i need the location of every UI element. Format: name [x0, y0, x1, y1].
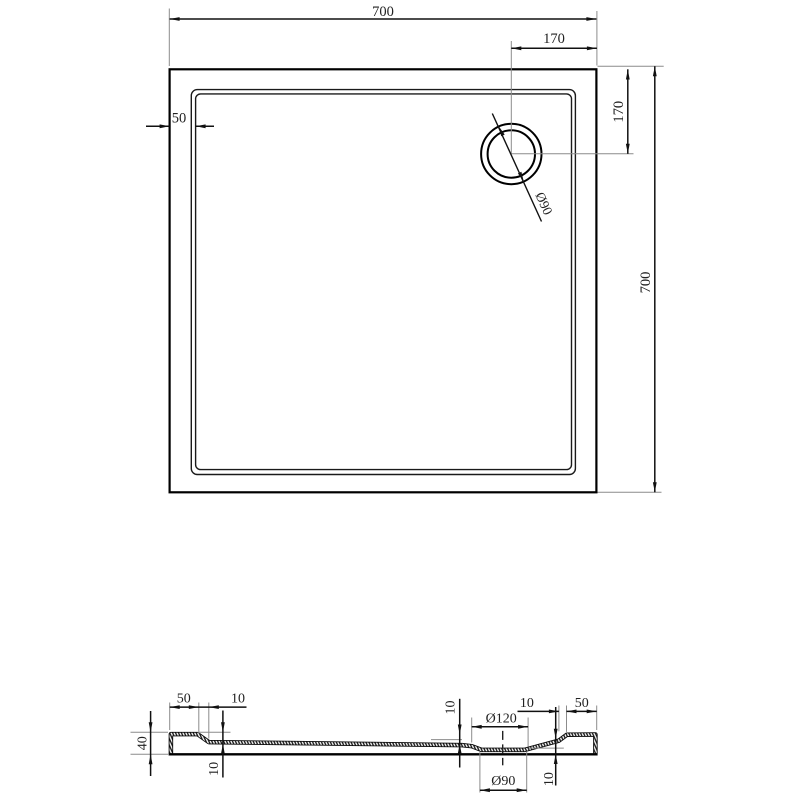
- svg-text:Ø90: Ø90: [532, 190, 555, 218]
- svg-text:700: 700: [372, 4, 394, 20]
- svg-text:Ø90: Ø90: [491, 774, 515, 789]
- svg-text:Ø120: Ø120: [486, 712, 517, 727]
- svg-text:10: 10: [207, 762, 222, 776]
- svg-text:50: 50: [172, 110, 187, 126]
- svg-text:10: 10: [542, 772, 557, 786]
- svg-text:10: 10: [231, 692, 245, 707]
- svg-text:170: 170: [543, 31, 565, 47]
- svg-text:700: 700: [638, 272, 654, 294]
- svg-text:170: 170: [611, 101, 627, 123]
- svg-text:10: 10: [444, 701, 459, 715]
- svg-text:10: 10: [520, 696, 534, 711]
- svg-text:50: 50: [575, 696, 589, 711]
- svg-text:50: 50: [177, 692, 191, 707]
- svg-text:40: 40: [136, 736, 151, 750]
